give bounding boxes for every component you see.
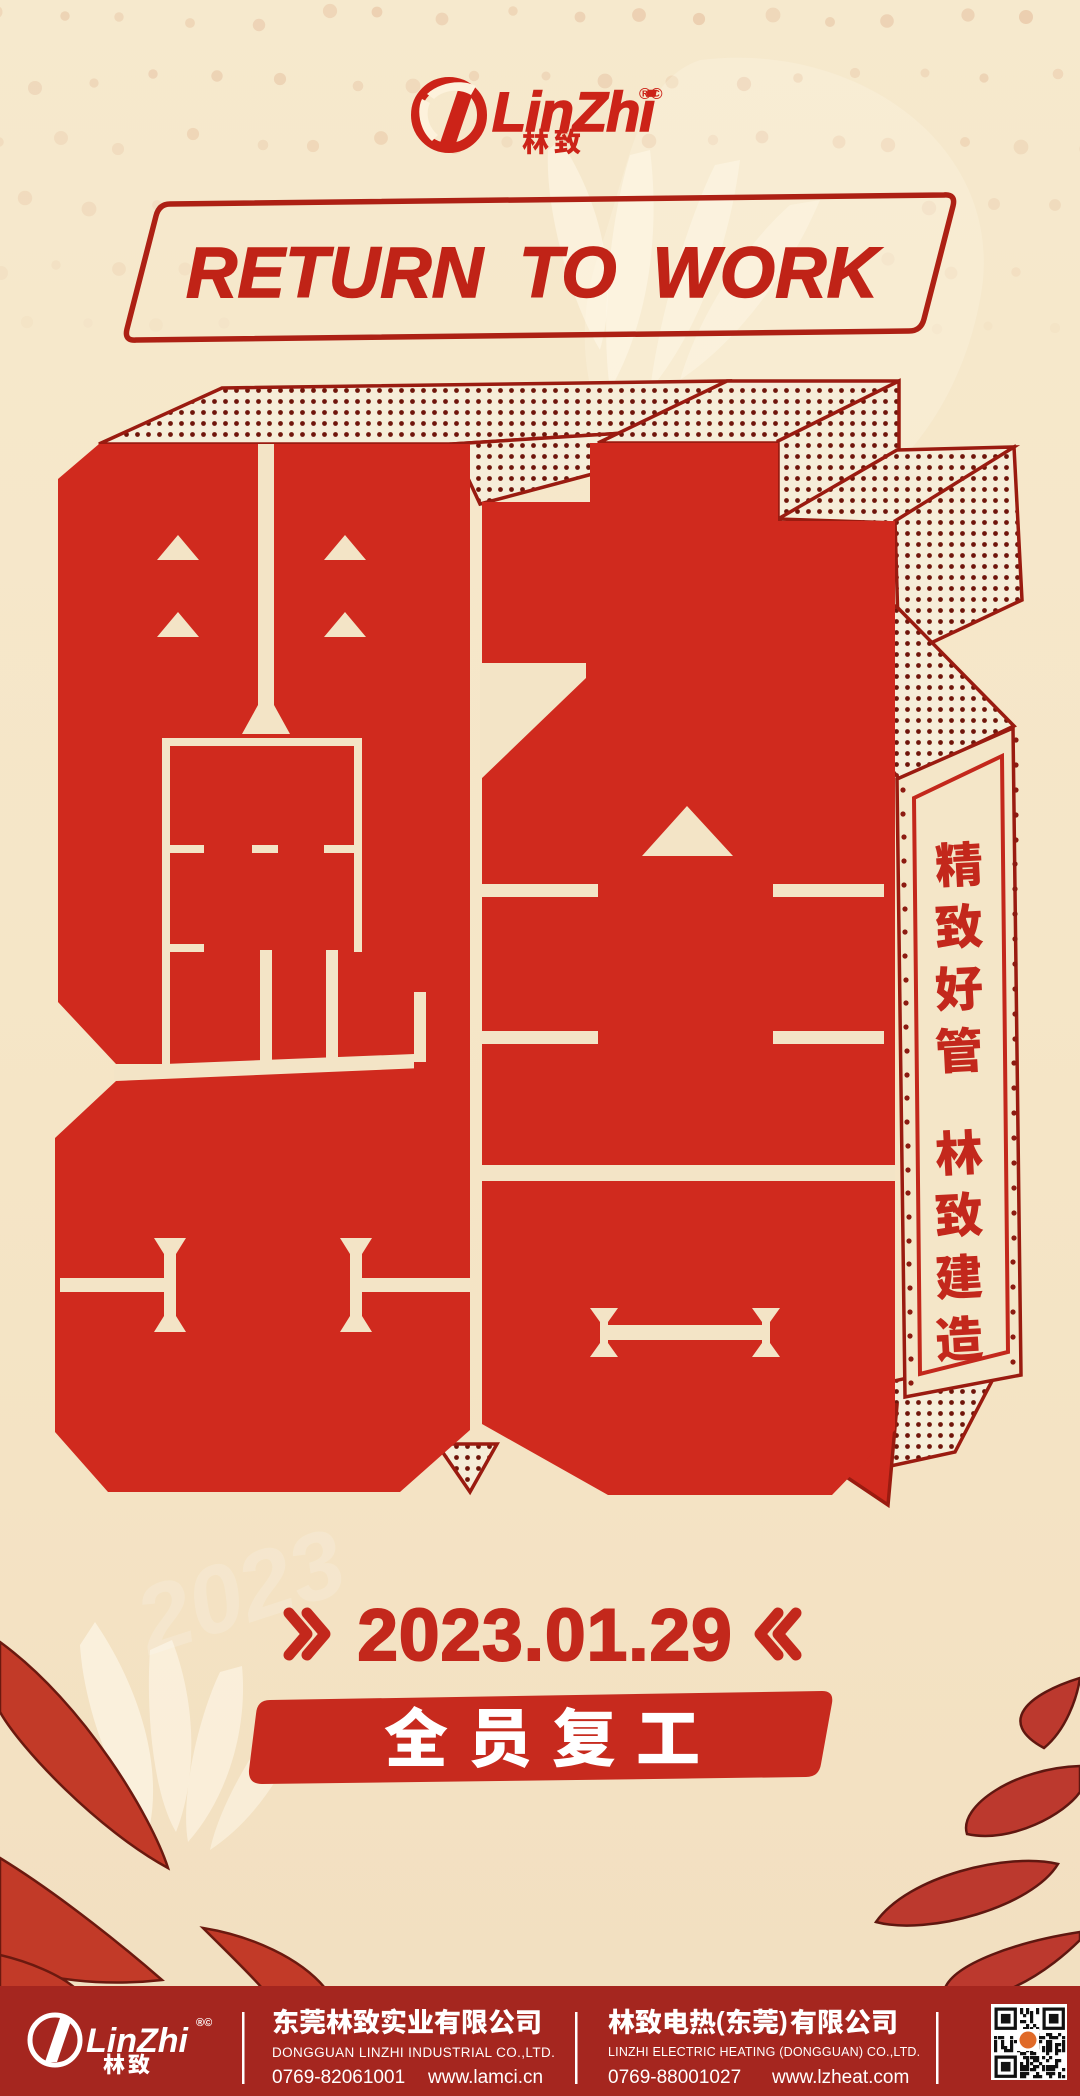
- svg-text:0769-82061001: 0769-82061001: [272, 2067, 405, 2088]
- svg-text:®©: ®©: [639, 86, 663, 103]
- svg-text:(: (: [716, 2006, 725, 2036]
- svg-text:LinZhi: LinZhi: [86, 2022, 190, 2060]
- svg-text:LINZHI ELECTRIC HEATING (DONGG: LINZHI ELECTRIC HEATING (DONGGUAN) CO.,L…: [608, 2045, 920, 2059]
- svg-text:0769-88001027: 0769-88001027: [608, 2067, 741, 2088]
- svg-text:www.lamci.cn: www.lamci.cn: [427, 2067, 543, 2088]
- svg-text:RETURN TO WORK: RETURN TO WORK: [186, 234, 886, 313]
- svg-text:2023.01.29: 2023.01.29: [357, 1595, 732, 1676]
- svg-text:DONGGUAN LINZHI INDUSTRIAL CO.: DONGGUAN LINZHI INDUSTRIAL CO.,LTD.: [272, 2045, 555, 2060]
- svg-text:www.lzheat.com: www.lzheat.com: [771, 2067, 909, 2088]
- svg-text:): ): [779, 2006, 788, 2036]
- svg-text:LinZhi: LinZhi: [492, 80, 656, 143]
- svg-text:®©: ®©: [196, 2017, 212, 2029]
